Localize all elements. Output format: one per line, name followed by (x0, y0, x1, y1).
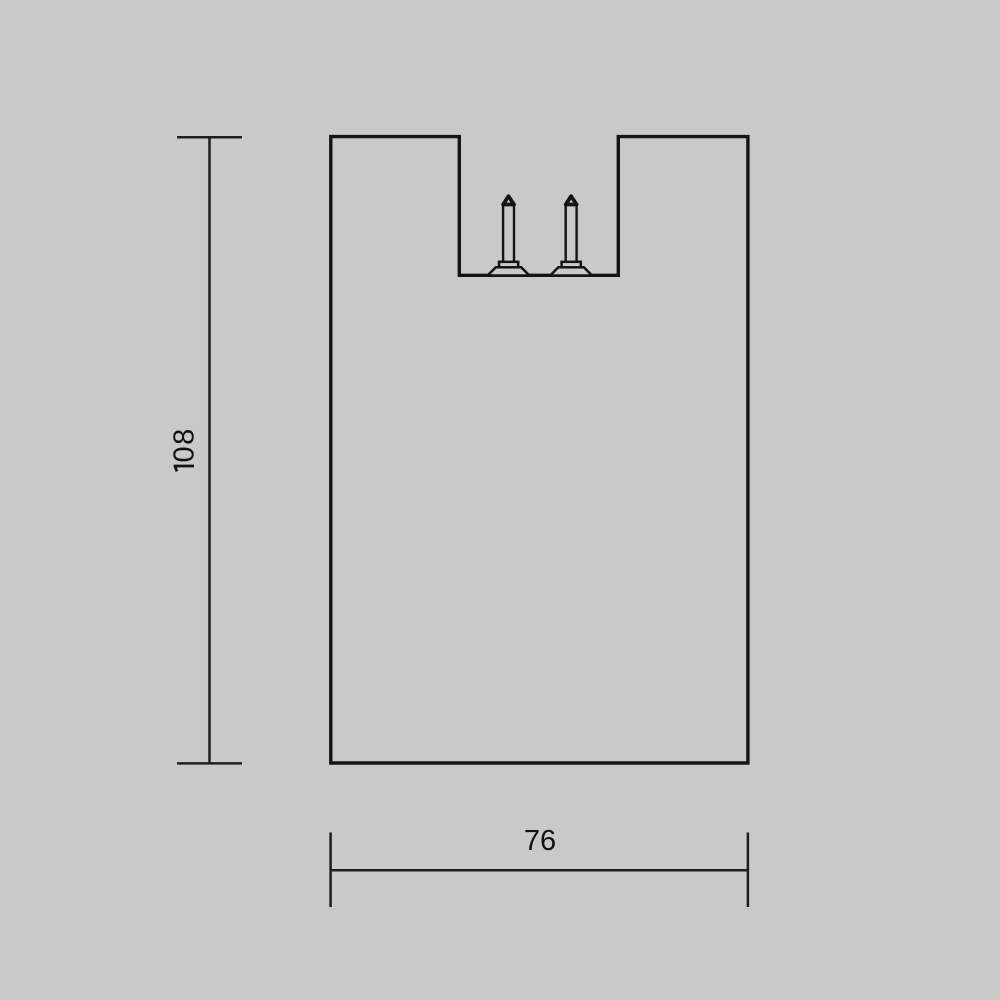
svg-text:76: 76 (524, 825, 556, 857)
svg-text:08: 08 (169, 427, 201, 462)
